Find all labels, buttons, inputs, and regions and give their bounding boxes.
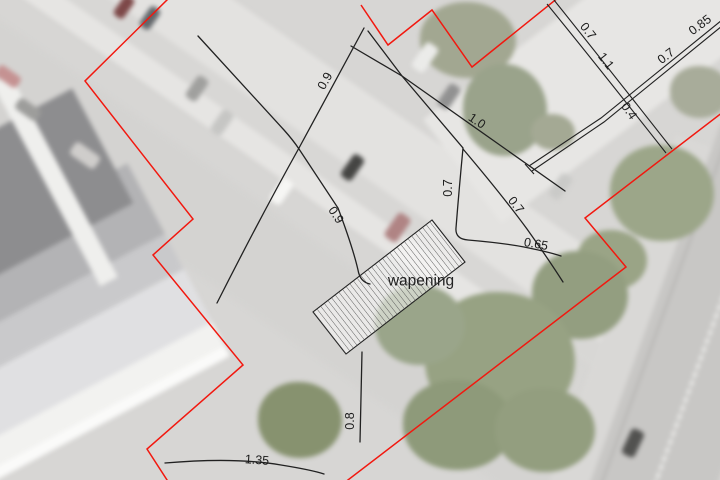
utility-line (360, 352, 362, 442)
depth-label: 0.7 (577, 20, 599, 42)
utility-duct-pair (529, 20, 720, 166)
utility-overlay: 0.90.91.00.70.70.650.71.10.40.70.850.81.… (0, 0, 720, 480)
depth-label: 0.7 (505, 194, 527, 216)
utility-duct-pair (547, 4, 666, 153)
depth-label: 1.35 (244, 452, 269, 468)
utility-line (217, 28, 364, 303)
utility-map-canvas[interactable]: 0.90.91.00.70.70.650.71.10.40.70.850.81.… (0, 0, 720, 480)
work-area-boundary-top (361, 0, 559, 67)
depth-label: 0.85 (686, 12, 714, 38)
utility-line (463, 149, 563, 282)
depth-label: 1.0 (466, 110, 488, 131)
depth-label: 0.9 (315, 70, 336, 92)
utility-duct-pair (532, 26, 720, 171)
utility-line (351, 46, 565, 191)
area-label: wapening (387, 273, 454, 290)
depth-label: 0.7 (655, 45, 677, 67)
depth-label: 0.65 (523, 235, 549, 253)
depth-label: 0.8 (343, 412, 357, 429)
depth-label: 0.7 (441, 179, 455, 196)
depth-label: 1.1 (595, 50, 617, 72)
utility-line (198, 36, 370, 284)
utility-line (368, 31, 561, 256)
work-area-boundary-left (85, 0, 243, 480)
depth-labels: 0.90.91.00.70.70.650.71.10.40.70.850.81.… (244, 12, 714, 468)
